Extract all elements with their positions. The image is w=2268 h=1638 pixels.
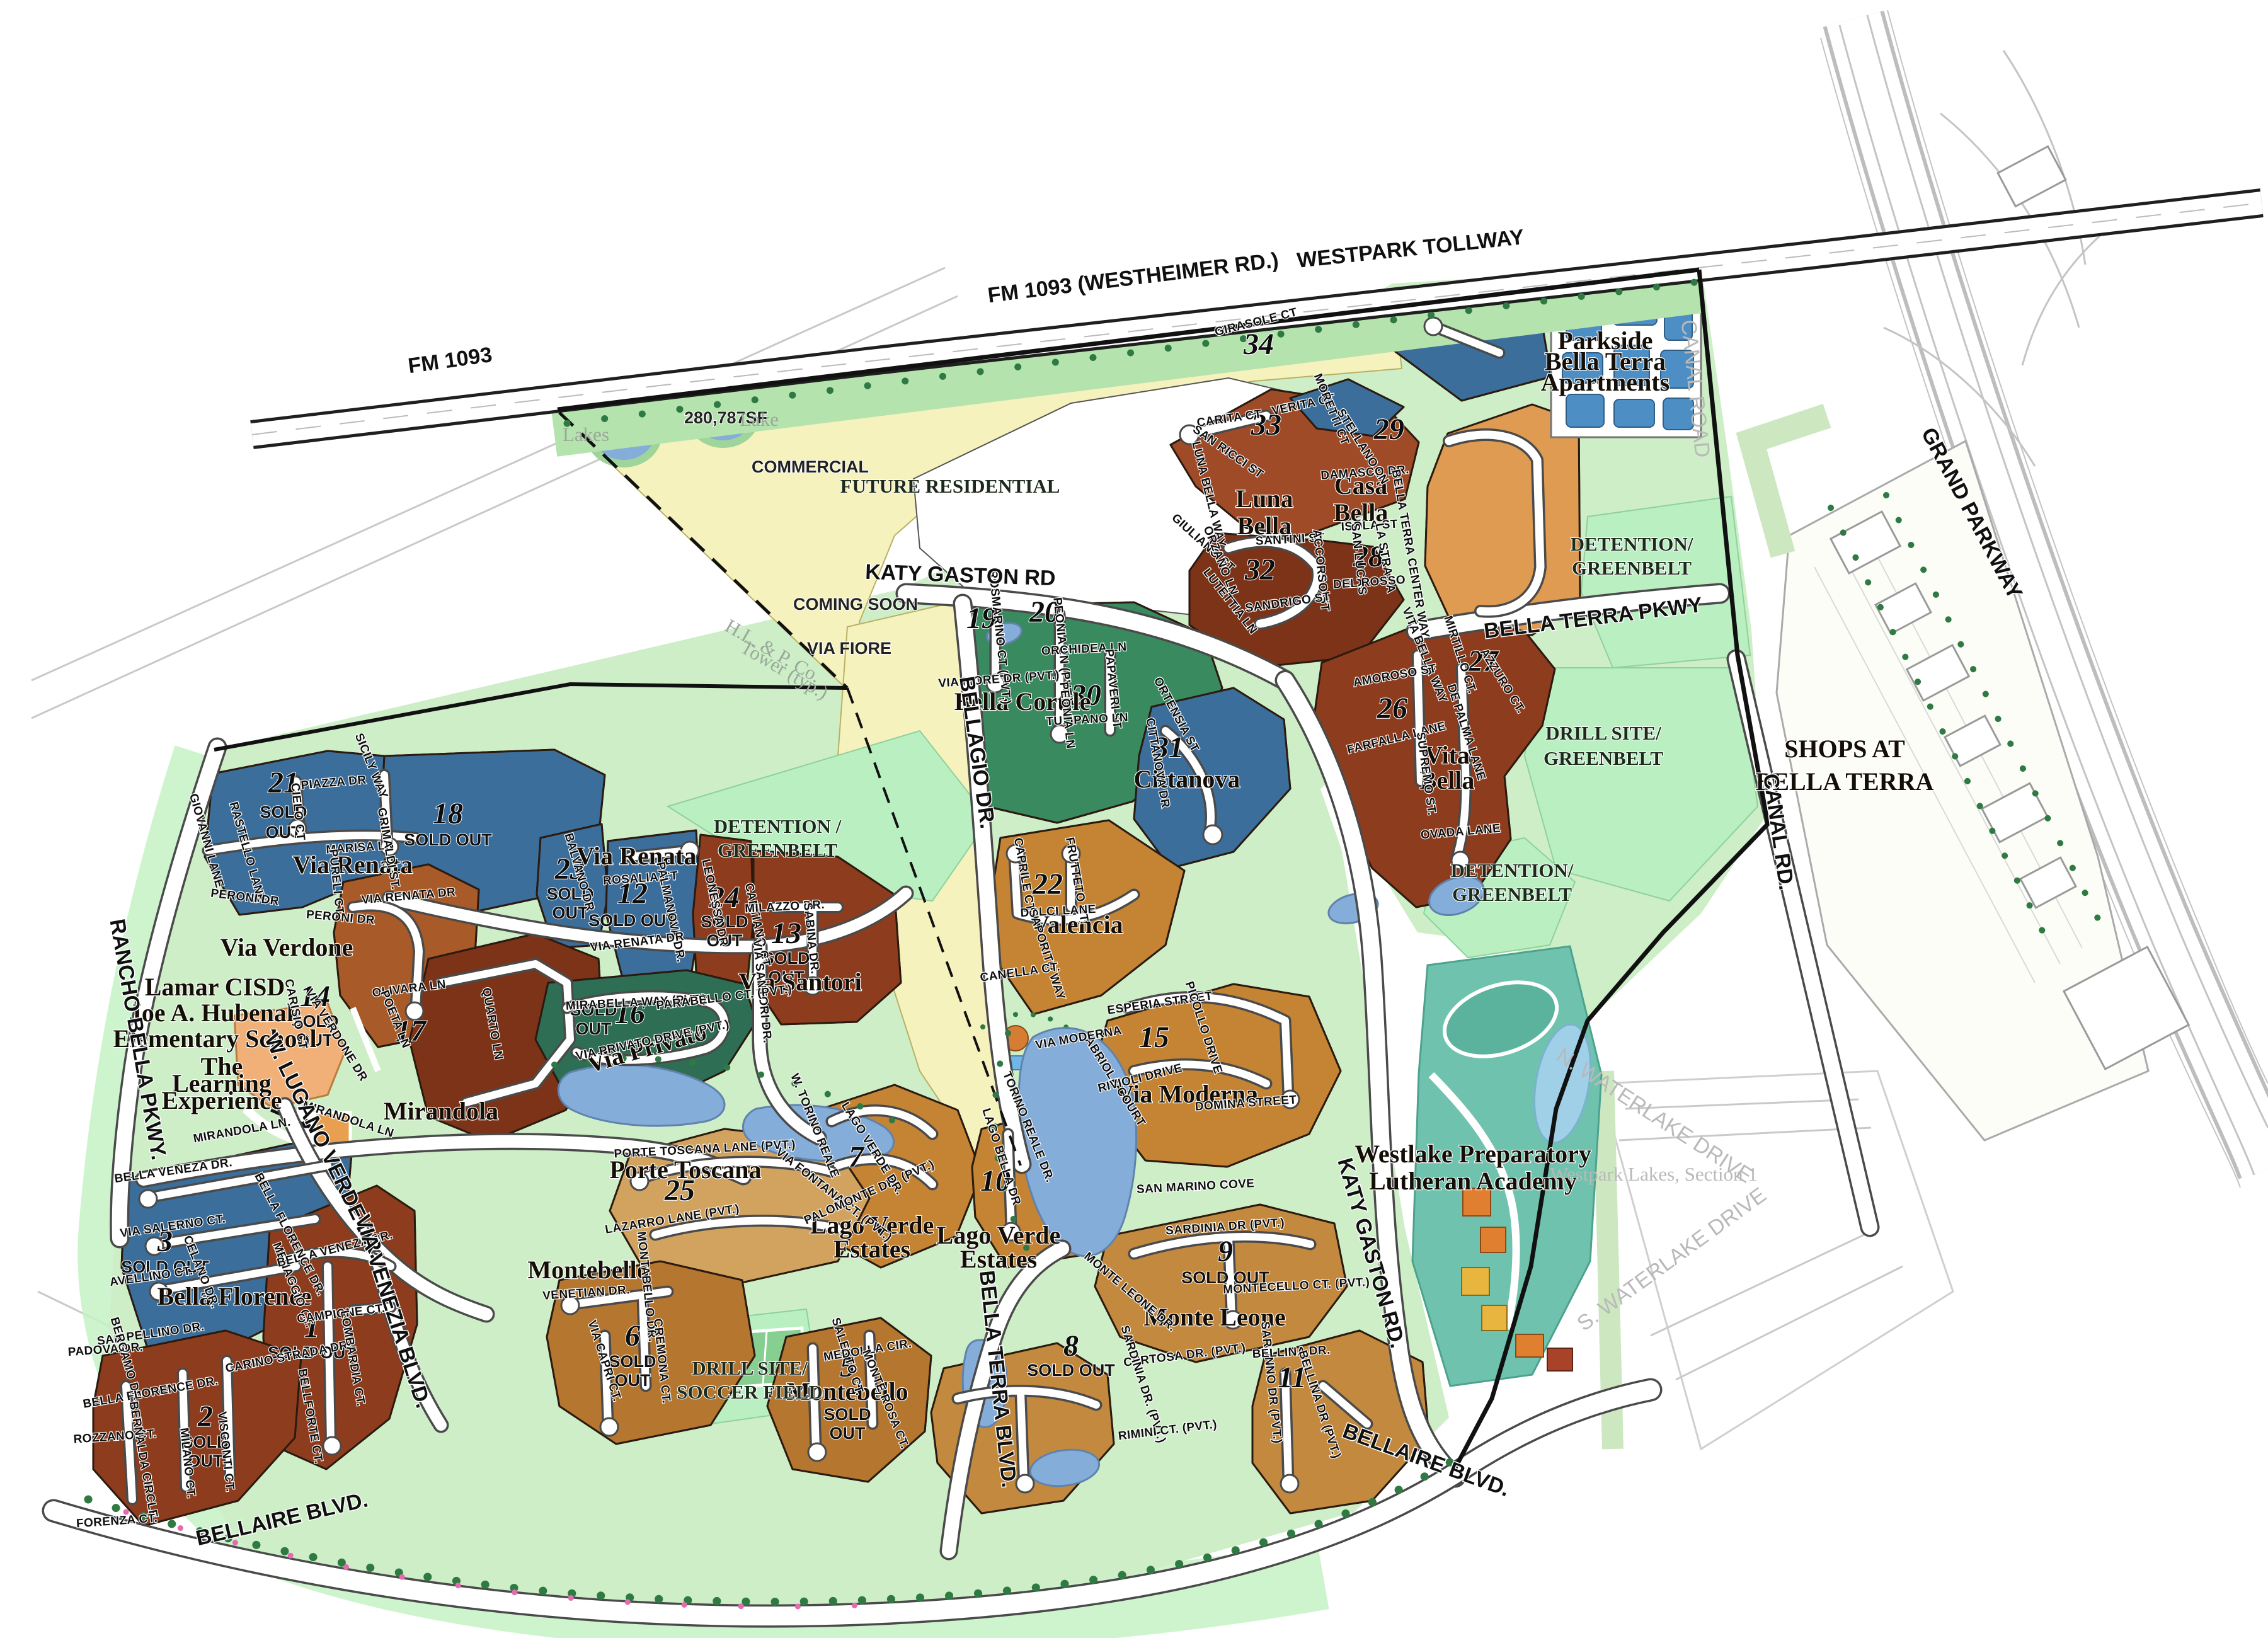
zone-label: FUTURE RESIDENTIAL bbox=[840, 475, 1060, 497]
zone-label: GREENBELT bbox=[718, 839, 837, 861]
section-label: 15 bbox=[1139, 1021, 1169, 1054]
section-label: 26 bbox=[1377, 692, 1407, 725]
section-label: 9 bbox=[1218, 1235, 1233, 1268]
zone-label: DETENTION/ bbox=[1451, 859, 1574, 881]
zone-label: GREENBELT bbox=[1543, 747, 1663, 769]
zone-label: Lakes bbox=[563, 423, 609, 445]
area-label: Joe A. Hubenak bbox=[129, 999, 301, 1027]
section-label: 34 bbox=[1243, 328, 1274, 361]
campus-building bbox=[1547, 1348, 1572, 1371]
bella-terra-site-plan: 3433322928192030312726211823122413141716… bbox=[0, 0, 2268, 1638]
apartment-building bbox=[1614, 399, 1654, 427]
status-label: SOLD OUT bbox=[588, 911, 677, 930]
status-label: OUT bbox=[830, 1424, 866, 1443]
zone-label: DETENTION/ bbox=[1571, 533, 1693, 555]
status-label: OUT bbox=[576, 1019, 612, 1038]
zone-label: Lake bbox=[740, 408, 779, 430]
area-label: Via Renata bbox=[576, 842, 697, 870]
zone-label: GREENBELT bbox=[1452, 883, 1572, 905]
zone-label: DETENTION / bbox=[714, 815, 842, 837]
status-label: SOLD bbox=[609, 1352, 656, 1371]
area-label: Experience bbox=[161, 1086, 282, 1114]
campus-building bbox=[1480, 1227, 1506, 1252]
section-label: 18 bbox=[433, 797, 463, 830]
area-label: Luna bbox=[1235, 484, 1293, 513]
zone-label: COMING SOON bbox=[793, 595, 918, 614]
apartment-building bbox=[1566, 394, 1604, 427]
zone-label: VIA FIORE bbox=[807, 639, 891, 658]
campus-building bbox=[1516, 1334, 1543, 1357]
section-label: 29 bbox=[1373, 413, 1404, 446]
area-label: Lutheran Academy bbox=[1369, 1167, 1577, 1195]
area-label: Estates bbox=[833, 1235, 910, 1263]
zone-label: COMMERCIAL bbox=[752, 457, 869, 476]
section-label: 22 bbox=[1032, 868, 1063, 901]
campus-building bbox=[1482, 1305, 1507, 1331]
zone-label: Westpark Lakes, Section 1 bbox=[1550, 1163, 1758, 1185]
area-label: Montebello bbox=[527, 1256, 649, 1284]
status-label: SOLD OUT bbox=[404, 830, 492, 849]
area-label: Cittanova bbox=[1134, 765, 1240, 793]
area-label: Via Verdone bbox=[220, 933, 353, 961]
section-label: 6 bbox=[625, 1319, 640, 1353]
section-label: 8 bbox=[1063, 1329, 1079, 1363]
section-label: 13 bbox=[771, 917, 801, 950]
area-label: Apartments bbox=[1541, 368, 1669, 396]
zone-label: GREENBELT bbox=[1572, 557, 1692, 579]
campus-building bbox=[1462, 1268, 1489, 1295]
map-canvas: 3433322928192030312726211823122413141716… bbox=[0, 0, 2268, 1638]
zone-label: SOCCER FIELD bbox=[677, 1381, 823, 1403]
area-label: Lamar CISD bbox=[145, 973, 285, 1001]
status-label: SOLD bbox=[823, 1405, 871, 1424]
section-label: 32 bbox=[1244, 553, 1275, 587]
area-label: SHOPS AT bbox=[1784, 735, 1905, 763]
zone-label: DRILL SITE/ bbox=[692, 1357, 808, 1379]
zone-label: DRILL SITE/ bbox=[1545, 722, 1661, 744]
section-label: 2 bbox=[197, 1400, 213, 1433]
status-label: SOLD OUT bbox=[1027, 1361, 1115, 1380]
area-label: Mirandola bbox=[384, 1097, 498, 1125]
